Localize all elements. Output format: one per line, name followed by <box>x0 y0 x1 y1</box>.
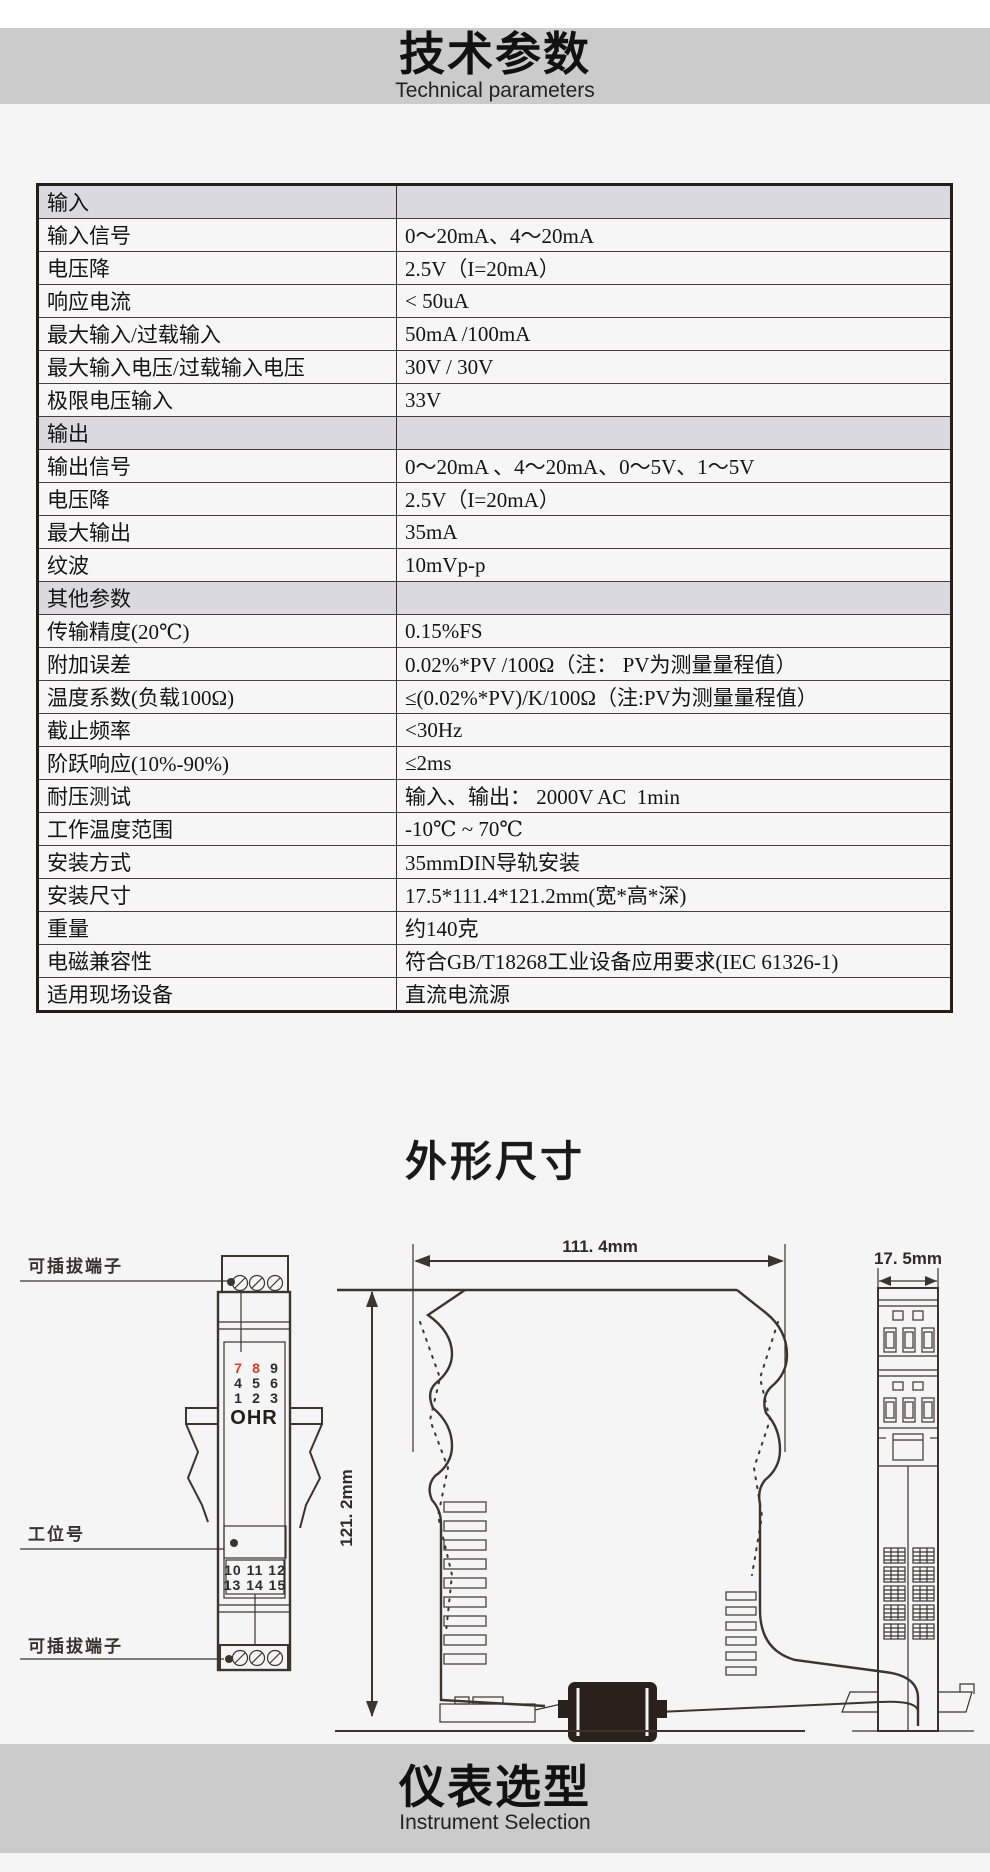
spec-label: 最大输入电压/过载输入电压 <box>38 351 397 384</box>
spec-label: 输出 <box>38 417 397 450</box>
spec-value: 输入、输出： 2000V AC 1min <box>397 780 952 813</box>
top-white-strip <box>0 0 990 28</box>
spec-value: <30Hz <box>397 714 952 747</box>
spec-row: 适用现场设备直流电流源 <box>38 978 952 1012</box>
spec-value <box>397 185 952 219</box>
footer-band: 仪表选型 Instrument Selection <box>0 1744 990 1853</box>
spec-row: 响应电流< 50uA <box>38 285 952 318</box>
spec-row: 电磁兼容性符合GB/T18268工业设备应用要求(IEC 61326-1) <box>38 945 952 978</box>
terminal-2: 2 <box>252 1390 260 1406</box>
spec-value: 33V <box>397 384 952 417</box>
spec-value: 直流电流源 <box>397 978 952 1012</box>
spec-label: 电压降 <box>38 252 397 285</box>
header-band: 技术参数 Technical parameters <box>0 28 990 104</box>
spec-label: 安装尺寸 <box>38 879 397 912</box>
outline-drawing: 可插拔端子 7 8 9 4 5 6 1 2 3 OHR 工位号 10 11 12 <box>0 1230 990 1745</box>
spec-row: 电压降2.5V（I=20mA） <box>38 483 952 516</box>
dim-depth: 17. 5mm <box>874 1249 942 1268</box>
spec-value: 2.5V（I=20mA） <box>397 252 952 285</box>
outline-section-title: 外形尺寸 <box>0 1128 990 1189</box>
page: { "header": { "title": "技术参数", "subtitle… <box>0 0 990 1872</box>
spec-label: 耐压测试 <box>38 780 397 813</box>
spec-value: 符合GB/T18268工业设备应用要求(IEC 61326-1) <box>397 945 952 978</box>
footer-subtitle: Instrument Selection <box>399 1811 590 1834</box>
spec-row: 安装方式35mmDIN导轨安装 <box>38 846 952 879</box>
spec-row: 阶跃响应(10%-90%)≤2ms <box>38 747 952 780</box>
spec-value: 0.15%FS <box>397 615 952 648</box>
terminal-row-10-12: 10 11 12 <box>224 1562 286 1578</box>
spec-label: 输入信号 <box>38 219 397 252</box>
spec-label: 电压降 <box>38 483 397 516</box>
spec-row: 电压降2.5V（I=20mA） <box>38 252 952 285</box>
page-subtitle: Technical parameters <box>395 79 595 102</box>
terminal-5: 5 <box>252 1375 260 1391</box>
spec-value: ≤2ms <box>397 747 952 780</box>
spec-row: 纹波10mVp-p <box>38 549 952 582</box>
front-bottom-terminal-label: 可插拔端子 <box>28 1636 123 1656</box>
terminal-3: 3 <box>270 1390 278 1406</box>
spec-value: 30V / 30V <box>397 351 952 384</box>
spec-label: 安装方式 <box>38 846 397 879</box>
terminal-8: 8 <box>252 1360 260 1376</box>
page-title: 技术参数 <box>399 30 591 78</box>
spec-value: -10℃ ~ 70℃ <box>397 813 952 846</box>
front-top-terminal-label: 可插拔端子 <box>28 1256 123 1276</box>
terminal-row-13-15: 13 14 15 <box>224 1577 287 1593</box>
spec-value: 0～20mA 、4～20mA、0～5V、1～5V <box>397 450 952 483</box>
spec-value: 0.02%*PV /100Ω（注： PV为测量量程值） <box>397 648 952 681</box>
spec-row: 最大输入/过载输入50mA /100mA <box>38 318 952 351</box>
spec-label: 其他参数 <box>38 582 397 615</box>
spec-value: 10mVp-p <box>397 549 952 582</box>
footer-title: 仪表选型 <box>399 1763 591 1811</box>
dim-width: 111. 4mm <box>562 1237 638 1256</box>
spec-label: 重量 <box>38 912 397 945</box>
terminal-4: 4 <box>234 1375 242 1391</box>
terminal-6: 6 <box>270 1375 278 1391</box>
spec-label: 工作温度范围 <box>38 813 397 846</box>
spec-value: 0～20mA、4～20mA <box>397 219 952 252</box>
spec-row: 耐压测试输入、输出： 2000V AC 1min <box>38 780 952 813</box>
spec-value: 17.5*111.4*121.2mm(宽*高*深) <box>397 879 952 912</box>
spec-row: 温度系数(负载100Ω)≤(0.02%*PV)/K/100Ω（注:PV为测量量程… <box>38 681 952 714</box>
dim-height: 121. 2mm <box>337 1469 356 1547</box>
spec-table: 输入输入信号0～20mA、4～20mA电压降2.5V（I=20mA）响应电流< … <box>36 183 953 1013</box>
spec-section-row: 输入 <box>38 185 952 219</box>
terminal-1: 1 <box>234 1390 242 1406</box>
spec-label: 截止频率 <box>38 714 397 747</box>
spec-table-body: 输入输入信号0～20mA、4～20mA电压降2.5V（I=20mA）响应电流< … <box>38 185 952 1012</box>
spec-value: < 50uA <box>397 285 952 318</box>
spec-value: 约140克 <box>397 912 952 945</box>
spec-label: 最大输入/过载输入 <box>38 318 397 351</box>
spec-label: 响应电流 <box>38 285 397 318</box>
spec-row: 输入信号0～20mA、4～20mA <box>38 219 952 252</box>
spec-section-row: 输出 <box>38 417 952 450</box>
spec-row: 最大输入电压/过载输入电压30V / 30V <box>38 351 952 384</box>
spec-row: 极限电压输入33V <box>38 384 952 417</box>
spec-value: 2.5V（I=20mA） <box>397 483 952 516</box>
spec-label: 最大输出 <box>38 516 397 549</box>
spec-row: 工作温度范围-10℃ ~ 70℃ <box>38 813 952 846</box>
spec-label: 适用现场设备 <box>38 978 397 1012</box>
spec-label: 阶跃响应(10%-90%) <box>38 747 397 780</box>
spec-value: 35mA <box>397 516 952 549</box>
spec-label: 温度系数(负载100Ω) <box>38 681 397 714</box>
tag-number-label: 工位号 <box>28 1524 85 1544</box>
side-view-drawing: 111. 4mm 121. 2mm <box>335 1237 918 1742</box>
spec-label: 输出信号 <box>38 450 397 483</box>
spec-value <box>397 582 952 615</box>
spec-row: 重量约140克 <box>38 912 952 945</box>
spec-label: 输入 <box>38 185 397 219</box>
spec-section-row: 其他参数 <box>38 582 952 615</box>
front-view-drawing: 可插拔端子 7 8 9 4 5 6 1 2 3 OHR 工位号 10 11 12 <box>20 1256 322 1670</box>
spec-row: 安装尺寸17.5*111.4*121.2mm(宽*高*深) <box>38 879 952 912</box>
spec-row: 附加误差0.02%*PV /100Ω（注： PV为测量量程值） <box>38 648 952 681</box>
terminal-9: 9 <box>270 1360 278 1376</box>
spec-label: 电磁兼容性 <box>38 945 397 978</box>
spec-row: 截止频率<30Hz <box>38 714 952 747</box>
spec-label: 极限电压输入 <box>38 384 397 417</box>
spec-value <box>397 417 952 450</box>
terminal-7: 7 <box>234 1360 242 1376</box>
spec-label: 纹波 <box>38 549 397 582</box>
spec-row: 最大输出35mA <box>38 516 952 549</box>
spec-label: 传输精度(20℃) <box>38 615 397 648</box>
top-view-drawing: 17. 5mm <box>842 1249 974 1731</box>
spec-label: 附加误差 <box>38 648 397 681</box>
spec-row: 传输精度(20℃)0.15%FS <box>38 615 952 648</box>
spec-value: ≤(0.02%*PV)/K/100Ω（注:PV为测量量程值） <box>397 681 952 714</box>
spec-value: 35mmDIN导轨安装 <box>397 846 952 879</box>
spec-row: 输出信号0～20mA 、4～20mA、0～5V、1～5V <box>38 450 952 483</box>
brand-logo: OHR <box>230 1407 277 1429</box>
spec-value: 50mA /100mA <box>397 318 952 351</box>
